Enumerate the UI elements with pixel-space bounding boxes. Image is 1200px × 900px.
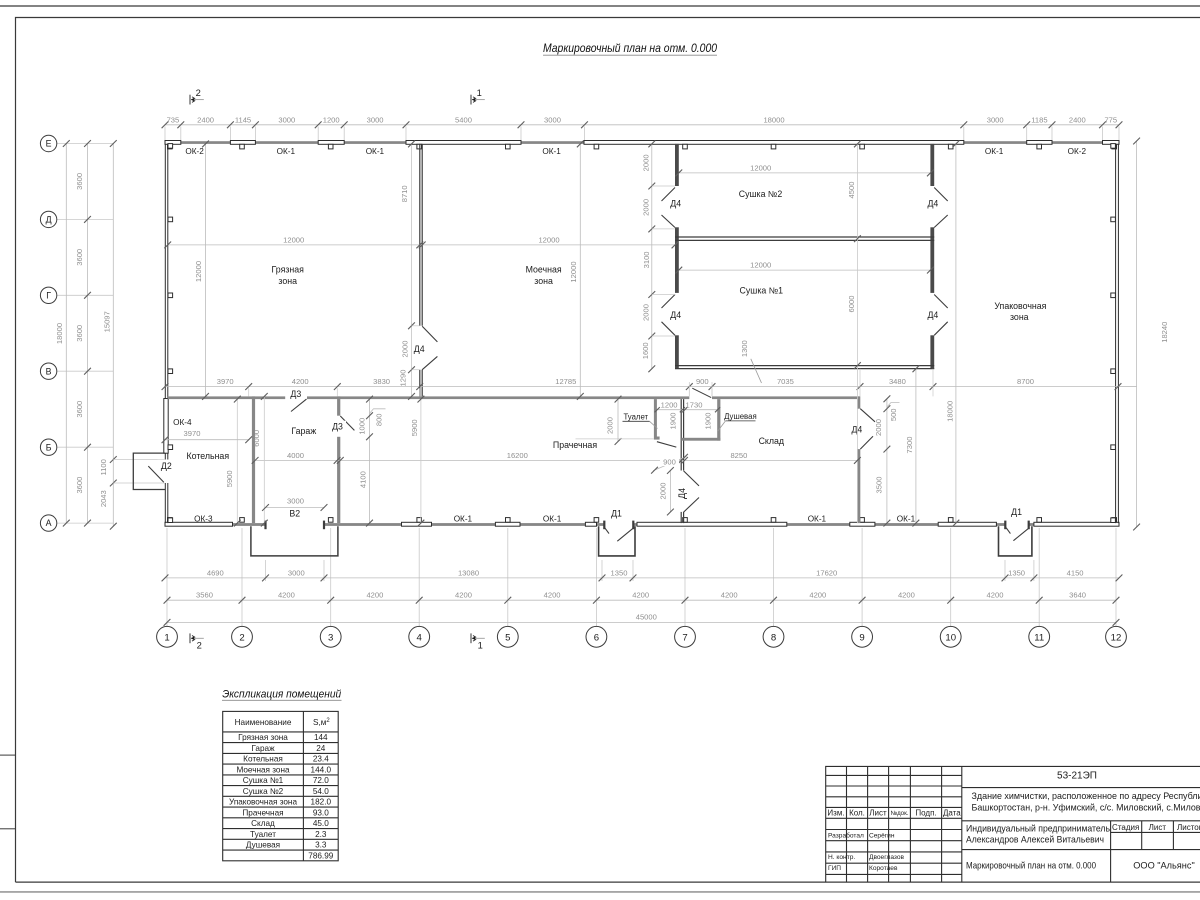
svg-text:2000: 2000 xyxy=(658,483,667,500)
svg-text:8: 8 xyxy=(771,632,776,643)
svg-text:Склад: Склад xyxy=(759,436,784,446)
svg-text:1145: 1145 xyxy=(235,115,251,124)
svg-text:5400: 5400 xyxy=(455,115,472,124)
svg-text:Листов: Листов xyxy=(1177,823,1200,832)
svg-text:4200: 4200 xyxy=(809,591,826,600)
svg-text:1350: 1350 xyxy=(611,568,628,577)
svg-text:Коротаев: Коротаев xyxy=(869,865,898,872)
svg-text:Н. контр.: Н. контр. xyxy=(828,854,855,861)
svg-text:4200: 4200 xyxy=(898,591,915,600)
svg-text:12000: 12000 xyxy=(194,261,203,282)
svg-text:93.0: 93.0 xyxy=(313,808,329,817)
svg-text:Г: Г xyxy=(46,290,51,300)
svg-text:1185: 1185 xyxy=(1031,115,1047,124)
svg-text:1600: 1600 xyxy=(641,342,650,359)
svg-text:4100: 4100 xyxy=(358,471,367,488)
svg-text:ОК-1: ОК-1 xyxy=(366,147,385,156)
svg-text:Д: Д xyxy=(46,215,52,225)
svg-text:5900: 5900 xyxy=(225,470,234,487)
svg-text:53-21ЭП: 53-21ЭП xyxy=(1057,771,1097,782)
svg-text:2: 2 xyxy=(197,640,202,651)
svg-text:800: 800 xyxy=(374,413,383,426)
svg-text:Экспликация помещений: Экспликация помещений xyxy=(222,688,341,700)
svg-text:ОК-1: ОК-1 xyxy=(985,147,1004,156)
svg-text:45.0: 45.0 xyxy=(313,819,329,828)
svg-text:ОК-1: ОК-1 xyxy=(897,514,916,523)
svg-text:4200: 4200 xyxy=(721,591,738,600)
svg-text:1900: 1900 xyxy=(704,413,713,430)
svg-text:2400: 2400 xyxy=(197,115,214,124)
svg-text:Грязная зона: Грязная зона xyxy=(238,733,288,742)
svg-text:ОК-3: ОК-3 xyxy=(194,514,213,523)
svg-text:Серёгин: Серёгин xyxy=(869,832,895,839)
svg-text:6000: 6000 xyxy=(252,430,261,447)
svg-text:2000: 2000 xyxy=(642,199,651,216)
svg-text:2: 2 xyxy=(239,632,244,643)
svg-text:1: 1 xyxy=(477,87,482,98)
svg-text:3000: 3000 xyxy=(544,115,561,124)
svg-text:4500: 4500 xyxy=(847,182,856,199)
svg-text:17620: 17620 xyxy=(816,568,837,577)
svg-text:зона: зона xyxy=(534,276,553,286)
svg-text:2000: 2000 xyxy=(642,154,651,171)
svg-text:Склад: Склад xyxy=(251,819,275,828)
svg-text:10: 10 xyxy=(945,632,956,643)
svg-text:8250: 8250 xyxy=(730,451,747,460)
svg-text:Д4: Д4 xyxy=(927,310,938,320)
svg-text:3480: 3480 xyxy=(889,377,906,386)
svg-text:Котельная: Котельная xyxy=(243,755,283,764)
svg-text:№док.: №док. xyxy=(890,810,908,817)
svg-text:12000: 12000 xyxy=(283,235,304,244)
svg-text:11: 11 xyxy=(1034,632,1044,643)
svg-text:182.0: 182.0 xyxy=(311,798,332,807)
svg-text:1900: 1900 xyxy=(669,413,678,430)
svg-text:Моечная зона: Моечная зона xyxy=(236,765,290,774)
svg-text:3600: 3600 xyxy=(75,173,84,190)
svg-text:3000: 3000 xyxy=(278,115,295,124)
svg-text:4: 4 xyxy=(417,632,423,643)
svg-text:Д2: Д2 xyxy=(161,461,172,471)
svg-text:144: 144 xyxy=(314,733,328,742)
svg-text:зона: зона xyxy=(278,276,297,286)
svg-text:2000: 2000 xyxy=(642,304,651,321)
svg-text:24: 24 xyxy=(316,744,326,753)
svg-text:12000: 12000 xyxy=(750,163,771,172)
svg-text:Душевая: Душевая xyxy=(246,841,280,850)
svg-text:Д4: Д4 xyxy=(851,425,862,435)
svg-text:12785: 12785 xyxy=(555,377,576,386)
svg-text:18000: 18000 xyxy=(55,323,64,344)
svg-text:ОК-1: ОК-1 xyxy=(542,147,561,156)
svg-text:8700: 8700 xyxy=(1017,377,1034,386)
svg-text:Туалет: Туалет xyxy=(250,830,276,839)
svg-text:1100: 1100 xyxy=(99,459,108,475)
svg-text:4000: 4000 xyxy=(287,451,304,460)
svg-text:Е: Е xyxy=(46,139,52,149)
svg-text:Маркировочный план на отм. 0.0: Маркировочный план на отм. 0.000 xyxy=(966,861,1096,871)
svg-text:Туалет: Туалет xyxy=(623,413,648,422)
svg-text:ОК-1: ОК-1 xyxy=(454,514,473,523)
svg-text:3600: 3600 xyxy=(75,325,84,342)
svg-text:3: 3 xyxy=(328,632,333,643)
svg-text:4200: 4200 xyxy=(987,591,1004,600)
svg-text:7300: 7300 xyxy=(905,437,914,454)
svg-text:Сушка №1: Сушка №1 xyxy=(243,776,284,785)
svg-text:Упаковочная зона: Упаковочная зона xyxy=(229,798,297,807)
svg-text:4200: 4200 xyxy=(366,591,383,600)
svg-text:5: 5 xyxy=(505,632,510,643)
svg-text:12000: 12000 xyxy=(750,261,771,270)
svg-text:12000: 12000 xyxy=(538,235,559,244)
svg-text:4200: 4200 xyxy=(544,591,561,600)
svg-text:Сушка №2: Сушка №2 xyxy=(243,787,284,796)
svg-text:Изм.: Изм. xyxy=(827,808,844,817)
svg-text:Д4: Д4 xyxy=(677,488,687,499)
svg-text:1290: 1290 xyxy=(399,370,408,387)
svg-text:Здание химчистки, расположенн: Здание химчистки, расположенное по адрес… xyxy=(972,791,1200,801)
svg-text:ОК-1: ОК-1 xyxy=(543,514,562,523)
svg-text:Маркировочный план на отм. 0.0: Маркировочный план на отм. 0.000 xyxy=(543,42,717,55)
svg-text:Индивидуальный предприниматель: Индивидуальный предприниматель xyxy=(966,824,1110,834)
svg-text:Д3: Д3 xyxy=(332,421,343,431)
svg-text:3000: 3000 xyxy=(987,115,1004,124)
svg-text:1: 1 xyxy=(164,632,169,643)
svg-text:Д1: Д1 xyxy=(1011,507,1022,517)
svg-text:ООО "Альянс": ООО "Альянс" xyxy=(1133,861,1194,871)
svg-text:4200: 4200 xyxy=(455,591,472,600)
svg-text:3000: 3000 xyxy=(288,568,305,577)
svg-text:3560: 3560 xyxy=(196,591,213,600)
svg-text:54.0: 54.0 xyxy=(313,787,329,796)
svg-text:18000: 18000 xyxy=(763,115,784,124)
svg-text:Башкортостан, р-н. Уфимский, с: Башкортостан, р-н. Уфимский, с/с. Миловс… xyxy=(972,802,1200,812)
svg-text:775: 775 xyxy=(1104,115,1117,124)
svg-text:В: В xyxy=(46,366,52,376)
svg-text:ОК-1: ОК-1 xyxy=(808,514,827,523)
svg-text:12: 12 xyxy=(1111,632,1122,643)
svg-text:6000: 6000 xyxy=(847,296,856,313)
svg-text:3970: 3970 xyxy=(184,429,201,438)
svg-text:Лист: Лист xyxy=(869,808,887,817)
svg-text:2043: 2043 xyxy=(99,490,108,507)
svg-text:Сушка №1: Сушка №1 xyxy=(740,286,784,296)
svg-text:12000: 12000 xyxy=(569,261,578,282)
svg-text:8710: 8710 xyxy=(400,185,409,202)
svg-text:Д4: Д4 xyxy=(927,199,938,209)
svg-text:Разработал: Разработал xyxy=(828,831,864,839)
svg-text:Александров Алексей Витальевич: Александров Алексей Витальевич xyxy=(966,835,1104,845)
svg-text:Упаковочная: Упаковочная xyxy=(994,301,1046,311)
svg-text:3600: 3600 xyxy=(75,401,84,418)
svg-text:Кол.: Кол. xyxy=(849,808,865,817)
svg-text:Грязная: Грязная xyxy=(272,264,305,274)
svg-text:9: 9 xyxy=(859,632,864,643)
svg-text:Стадия: Стадия xyxy=(1112,823,1139,832)
svg-text:Сушка №2: Сушка №2 xyxy=(739,189,783,199)
svg-text:5900: 5900 xyxy=(410,419,419,436)
svg-text:4200: 4200 xyxy=(292,377,309,386)
svg-text:Гараж: Гараж xyxy=(251,744,275,753)
svg-text:7: 7 xyxy=(682,632,687,643)
svg-text:Котельная: Котельная xyxy=(187,451,230,461)
svg-text:Дата: Дата xyxy=(943,808,961,817)
svg-text:3000: 3000 xyxy=(287,497,304,506)
svg-text:2000: 2000 xyxy=(874,419,883,436)
svg-text:45000: 45000 xyxy=(636,613,657,622)
svg-text:1300: 1300 xyxy=(740,340,749,357)
svg-text:1200: 1200 xyxy=(323,115,340,124)
svg-text:3500: 3500 xyxy=(875,477,884,494)
svg-text:900: 900 xyxy=(696,377,709,386)
svg-text:18240: 18240 xyxy=(1160,322,1169,343)
svg-text:Д4: Д4 xyxy=(670,310,681,320)
svg-text:3100: 3100 xyxy=(642,251,651,268)
svg-text:ОК-2: ОК-2 xyxy=(185,147,204,156)
svg-text:А: А xyxy=(46,518,52,528)
svg-text:3600: 3600 xyxy=(75,477,84,494)
svg-text:1: 1 xyxy=(478,640,483,651)
svg-text:3970: 3970 xyxy=(217,377,234,386)
svg-text:16200: 16200 xyxy=(507,451,528,460)
svg-text:4200: 4200 xyxy=(278,591,295,600)
svg-text:144.0: 144.0 xyxy=(311,765,332,774)
svg-text:В2: В2 xyxy=(289,509,300,519)
svg-text:Душевая: Душевая xyxy=(724,412,757,421)
svg-text:ОК-2: ОК-2 xyxy=(1068,147,1087,156)
svg-text:3640: 3640 xyxy=(1069,591,1086,600)
svg-text:Двоеглазов: Двоеглазов xyxy=(869,854,905,861)
svg-text:Прачечная: Прачечная xyxy=(242,808,283,817)
svg-text:Д4: Д4 xyxy=(414,344,425,354)
svg-text:Д3: Д3 xyxy=(290,389,301,399)
svg-text:Моечная: Моечная xyxy=(526,264,562,274)
svg-text:4150: 4150 xyxy=(1067,568,1084,577)
svg-text:6: 6 xyxy=(594,632,599,643)
svg-text:Подп.: Подп. xyxy=(915,808,936,817)
svg-text:18000: 18000 xyxy=(945,401,954,422)
svg-text:Б: Б xyxy=(46,442,52,452)
svg-text:ОК-1: ОК-1 xyxy=(277,147,296,156)
svg-text:ОК-4: ОК-4 xyxy=(173,418,192,427)
svg-text:1350: 1350 xyxy=(1008,568,1025,577)
svg-text:7035: 7035 xyxy=(777,377,794,386)
svg-text:1200: 1200 xyxy=(661,400,678,409)
svg-text:2: 2 xyxy=(196,87,201,98)
svg-text:72.0: 72.0 xyxy=(313,776,329,785)
svg-text:Наименование: Наименование xyxy=(235,718,292,727)
svg-text:900: 900 xyxy=(663,458,676,467)
svg-text:15097: 15097 xyxy=(103,311,112,332)
svg-text:23.4: 23.4 xyxy=(313,755,329,764)
svg-text:1730: 1730 xyxy=(686,400,703,409)
svg-text:Д4: Д4 xyxy=(670,199,681,209)
svg-text:2000: 2000 xyxy=(401,341,410,358)
svg-text:зона: зона xyxy=(1010,312,1029,322)
svg-text:2000: 2000 xyxy=(606,417,615,434)
svg-text:2.3: 2.3 xyxy=(315,830,327,839)
svg-text:Прачечная: Прачечная xyxy=(553,440,597,450)
svg-text:3000: 3000 xyxy=(367,115,384,124)
svg-text:500: 500 xyxy=(889,408,898,421)
svg-text:Д1: Д1 xyxy=(611,508,622,518)
svg-text:4200: 4200 xyxy=(632,591,649,600)
svg-text:2400: 2400 xyxy=(1069,115,1086,124)
svg-text:ГИП: ГИП xyxy=(828,865,841,872)
svg-text:786.99: 786.99 xyxy=(308,851,333,860)
svg-text:4690: 4690 xyxy=(207,568,224,577)
svg-text:1000: 1000 xyxy=(358,418,367,435)
svg-text:735: 735 xyxy=(167,115,180,124)
svg-text:Лист: Лист xyxy=(1149,823,1167,832)
svg-text:13080: 13080 xyxy=(458,568,479,577)
svg-text:3830: 3830 xyxy=(373,377,390,386)
svg-text:3600: 3600 xyxy=(75,249,84,266)
svg-text:Гараж: Гараж xyxy=(291,426,316,436)
svg-text:3.3: 3.3 xyxy=(315,841,327,850)
